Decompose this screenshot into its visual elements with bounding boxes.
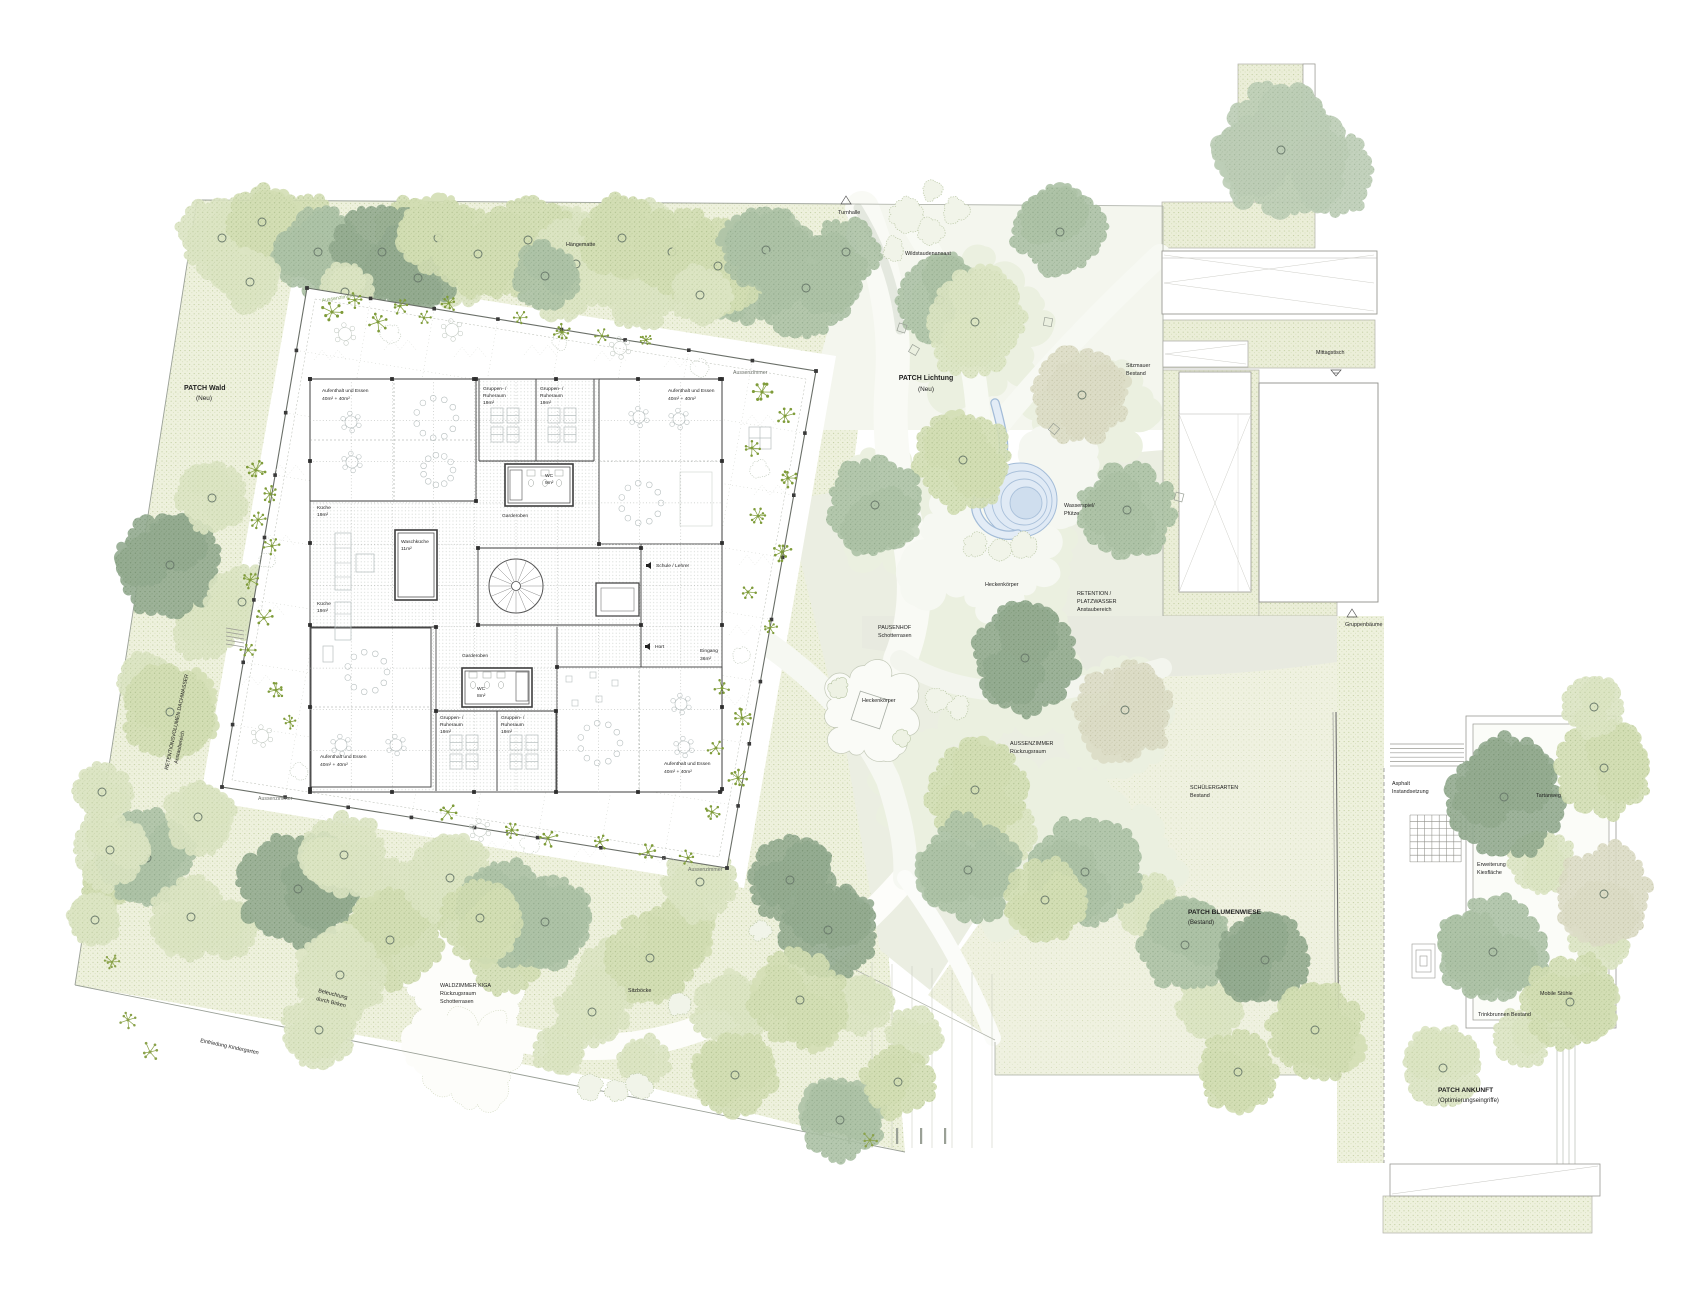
svg-text:40m² + 40m²: 40m² + 40m² [668, 396, 696, 402]
svg-text:Rückzugsraum: Rückzugsraum [1010, 749, 1046, 755]
svg-text:Mobile Stühle: Mobile Stühle [1540, 991, 1573, 997]
svg-text:(Bestand): (Bestand) [1188, 920, 1214, 926]
svg-text:Aufenthalt und Essen: Aufenthalt und Essen [664, 761, 711, 767]
svg-text:(Neu): (Neu) [196, 395, 212, 402]
svg-text:Schotterrasen: Schotterrasen [440, 999, 474, 1005]
svg-text:(Neu): (Neu) [918, 386, 934, 393]
svg-text:WALDZIMMER KIGA: WALDZIMMER KIGA [440, 983, 491, 989]
svg-text:11m²: 11m² [401, 546, 412, 552]
svg-text:Einfriedung Kindergarten: Einfriedung Kindergarten [200, 1038, 260, 1056]
svg-text:Aufenthalt und Essen: Aufenthalt und Essen [322, 388, 369, 394]
svg-text:Gruppen- /: Gruppen- / [440, 715, 464, 721]
svg-text:40m² + 40m²: 40m² + 40m² [664, 769, 692, 775]
svg-text:Hort: Hort [655, 644, 665, 650]
svg-text:PATCH BLUMENWIESE: PATCH BLUMENWIESE [1188, 909, 1262, 916]
svg-text:9m²: 9m² [545, 480, 554, 486]
svg-text:19m²: 19m² [483, 400, 495, 406]
svg-text:19m²: 19m² [540, 400, 552, 406]
svg-text:Heckenkörper: Heckenkörper [862, 698, 896, 704]
svg-text:Mittagstisch: Mittagstisch [1316, 350, 1344, 356]
svg-text:Instandsetzung: Instandsetzung [1392, 789, 1429, 795]
svg-text:36m²: 36m² [700, 656, 712, 662]
svg-text:Bestand: Bestand [1126, 371, 1146, 377]
svg-text:Heckenkörper: Heckenkörper [985, 582, 1019, 588]
svg-text:Ruheraum: Ruheraum [483, 393, 506, 399]
svg-text:Gruppenbäume: Gruppenbäume [1345, 622, 1382, 628]
svg-text:Aufenthalt und Essen: Aufenthalt und Essen [320, 754, 367, 760]
svg-text:Pfütze: Pfütze [1064, 511, 1079, 517]
svg-text:Schotterrasen: Schotterrasen [878, 633, 912, 639]
svg-text:19m²: 19m² [501, 729, 513, 735]
svg-text:19m²: 19m² [317, 512, 329, 518]
svg-text:Hängematte: Hängematte [566, 242, 595, 248]
svg-text:Schule / Lehrer: Schule / Lehrer [656, 563, 690, 569]
svg-text:Eingang: Eingang [700, 648, 718, 654]
svg-text:Wildstaudenansaat: Wildstaudenansaat [905, 251, 951, 257]
svg-text:Trinkbrunnen Bestand: Trinkbrunnen Bestand [1478, 1012, 1531, 1018]
svg-text:PATCH ANKUNFT: PATCH ANKUNFT [1438, 1087, 1493, 1094]
svg-text:Aufenthalt und Essen: Aufenthalt und Essen [668, 388, 715, 394]
svg-text:Gruppen- /: Gruppen- / [501, 715, 525, 721]
svg-text:Küche: Küche [317, 505, 331, 511]
svg-text:40m² + 40m²: 40m² + 40m² [322, 396, 350, 402]
svg-text:(Optimierungseingriffe): (Optimierungseingriffe) [1438, 1098, 1499, 1104]
svg-text:Rückzugsraum: Rückzugsraum [440, 991, 476, 997]
svg-text:8m²: 8m² [477, 693, 486, 699]
svg-text:Turnhalle: Turnhalle [838, 210, 860, 216]
svg-text:Anstaubereich: Anstaubereich [1077, 607, 1111, 613]
svg-text:19m²: 19m² [317, 608, 329, 614]
svg-text:Aussenzimmer: Aussenzimmer [733, 370, 768, 376]
svg-text:Gruppen- /: Gruppen- / [483, 386, 507, 392]
svg-text:Waschküche: Waschküche [401, 539, 429, 545]
svg-text:PATCH Wald: PATCH Wald [184, 385, 225, 392]
svg-text:Sitzböcke: Sitzböcke [628, 988, 651, 994]
svg-text:WC: WC [545, 473, 554, 479]
svg-text:WC: WC [477, 686, 486, 692]
svg-text:Ruheraum: Ruheraum [501, 722, 524, 728]
svg-text:PATCH Lichtung: PATCH Lichtung [899, 375, 954, 382]
svg-text:PLATZWASSER: PLATZWASSER [1077, 599, 1117, 605]
svg-text:Kiesfläche: Kiesfläche [1477, 870, 1502, 876]
svg-text:40m² + 40m²: 40m² + 40m² [320, 762, 348, 768]
svg-text:Aussenzimmer: Aussenzimmer [258, 796, 293, 802]
svg-text:Bestand: Bestand [1190, 793, 1210, 799]
svg-text:SCHÜLERGARTEN: SCHÜLERGARTEN [1190, 784, 1238, 791]
svg-text:Asphalt: Asphalt [1392, 781, 1410, 787]
svg-text:Erweiterung: Erweiterung [1477, 862, 1506, 868]
svg-text:AUSSENZIMMER: AUSSENZIMMER [1010, 741, 1054, 747]
svg-text:Sitzmauer: Sitzmauer [1126, 363, 1150, 369]
svg-text:Wasserspiel/: Wasserspiel/ [1064, 503, 1095, 509]
svg-text:Garderoben: Garderoben [462, 653, 488, 659]
svg-text:Küche: Küche [317, 601, 331, 607]
svg-text:Ruheraum: Ruheraum [540, 393, 563, 399]
svg-text:PAUSENHOF: PAUSENHOF [878, 625, 912, 631]
svg-text:Gruppen- /: Gruppen- / [540, 386, 564, 392]
svg-text:Aussenzimmer: Aussenzimmer [688, 867, 723, 873]
svg-text:RETENTION /: RETENTION / [1077, 591, 1112, 597]
svg-text:Garderoben: Garderoben [502, 513, 528, 519]
svg-text:Tartanweg: Tartanweg [1536, 793, 1561, 799]
svg-text:Ruheraum: Ruheraum [440, 722, 463, 728]
svg-text:19m²: 19m² [440, 729, 452, 735]
